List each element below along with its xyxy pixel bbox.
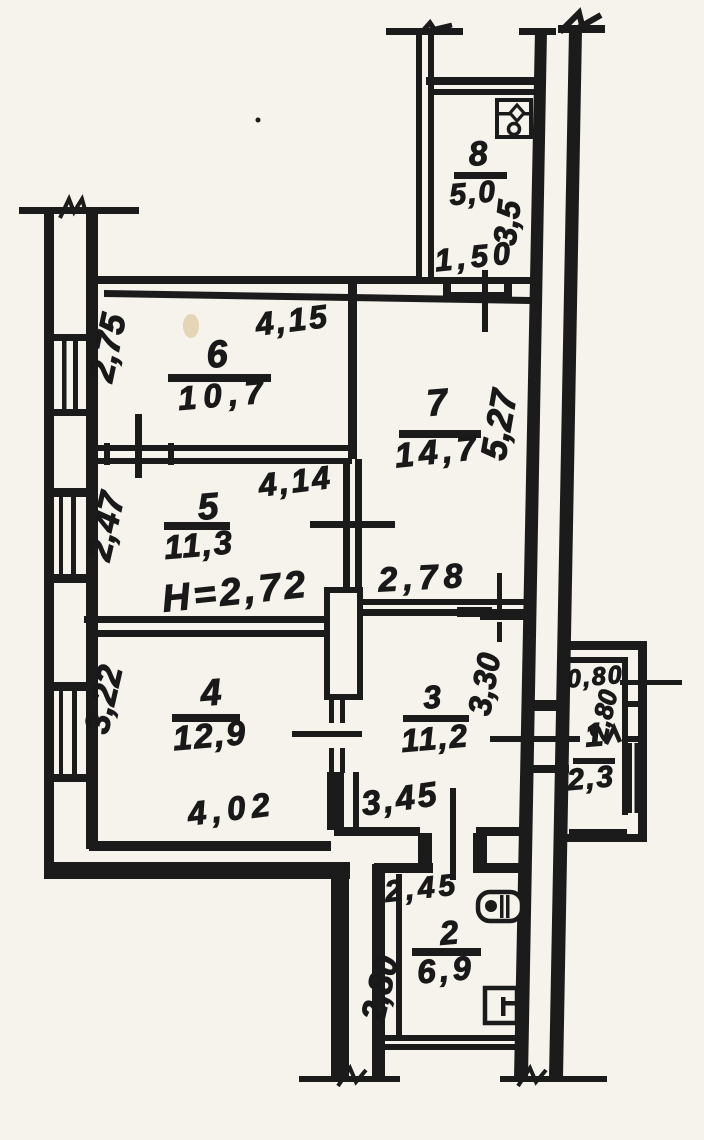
svg-text:2: 2 bbox=[437, 913, 460, 952]
svg-text:2,78: 2,78 bbox=[376, 557, 469, 600]
svg-text:6,9: 6,9 bbox=[416, 949, 477, 991]
svg-text:4: 4 bbox=[198, 671, 223, 714]
svg-text:11,3: 11,3 bbox=[163, 523, 236, 566]
svg-text:8: 8 bbox=[467, 134, 489, 174]
svg-text:11,2: 11,2 bbox=[400, 717, 471, 759]
svg-text:1: 1 bbox=[583, 715, 605, 753]
svg-text:12,9: 12,9 bbox=[171, 714, 248, 758]
svg-text:3: 3 bbox=[422, 678, 443, 715]
svg-text:2,3: 2,3 bbox=[565, 760, 616, 797]
